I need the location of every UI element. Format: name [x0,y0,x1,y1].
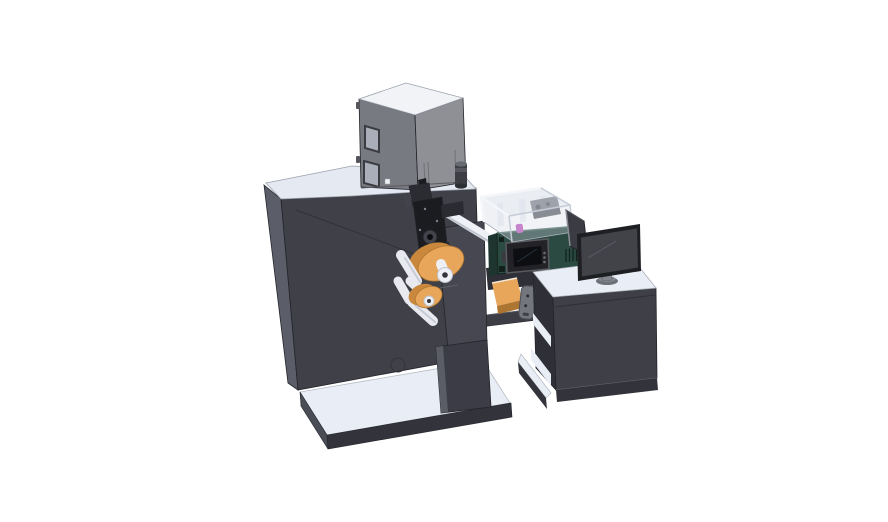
sensor-slot [523,313,529,317]
cabinet-hinge [356,102,360,109]
touchpanel-bracket [502,251,506,263]
mech-side-block [404,194,412,207]
touchpanel-screen [513,246,542,267]
exhaust-cylinder [455,161,467,188]
touchpanel-button [543,252,546,255]
mech-boss-center [427,234,433,240]
roll-shaft [427,299,431,303]
electrical-cabinet [356,83,466,190]
mech-screw [424,208,426,210]
cylinder-cap [455,161,467,166]
cabinet-latch [385,179,390,184]
cabinet-window-upper [365,126,379,152]
desk-front-face [553,288,657,390]
core-shaft-end [442,272,448,278]
cylinder-band [455,168,467,172]
cylinder-body [455,164,467,186]
cylinder-base [455,183,467,188]
mech-screw [436,220,438,222]
cabinet-window-lower [364,161,379,187]
cad-render-canvas [0,0,888,522]
operator-desk [518,259,658,409]
unit-corner-block [499,266,505,272]
touchpanel-button [543,261,546,264]
unit-corner-block [499,237,504,242]
cabinet-hinge [356,156,360,163]
mech-screw [419,229,421,231]
unit-left-face [488,233,498,277]
touchpanel-button [543,256,546,259]
